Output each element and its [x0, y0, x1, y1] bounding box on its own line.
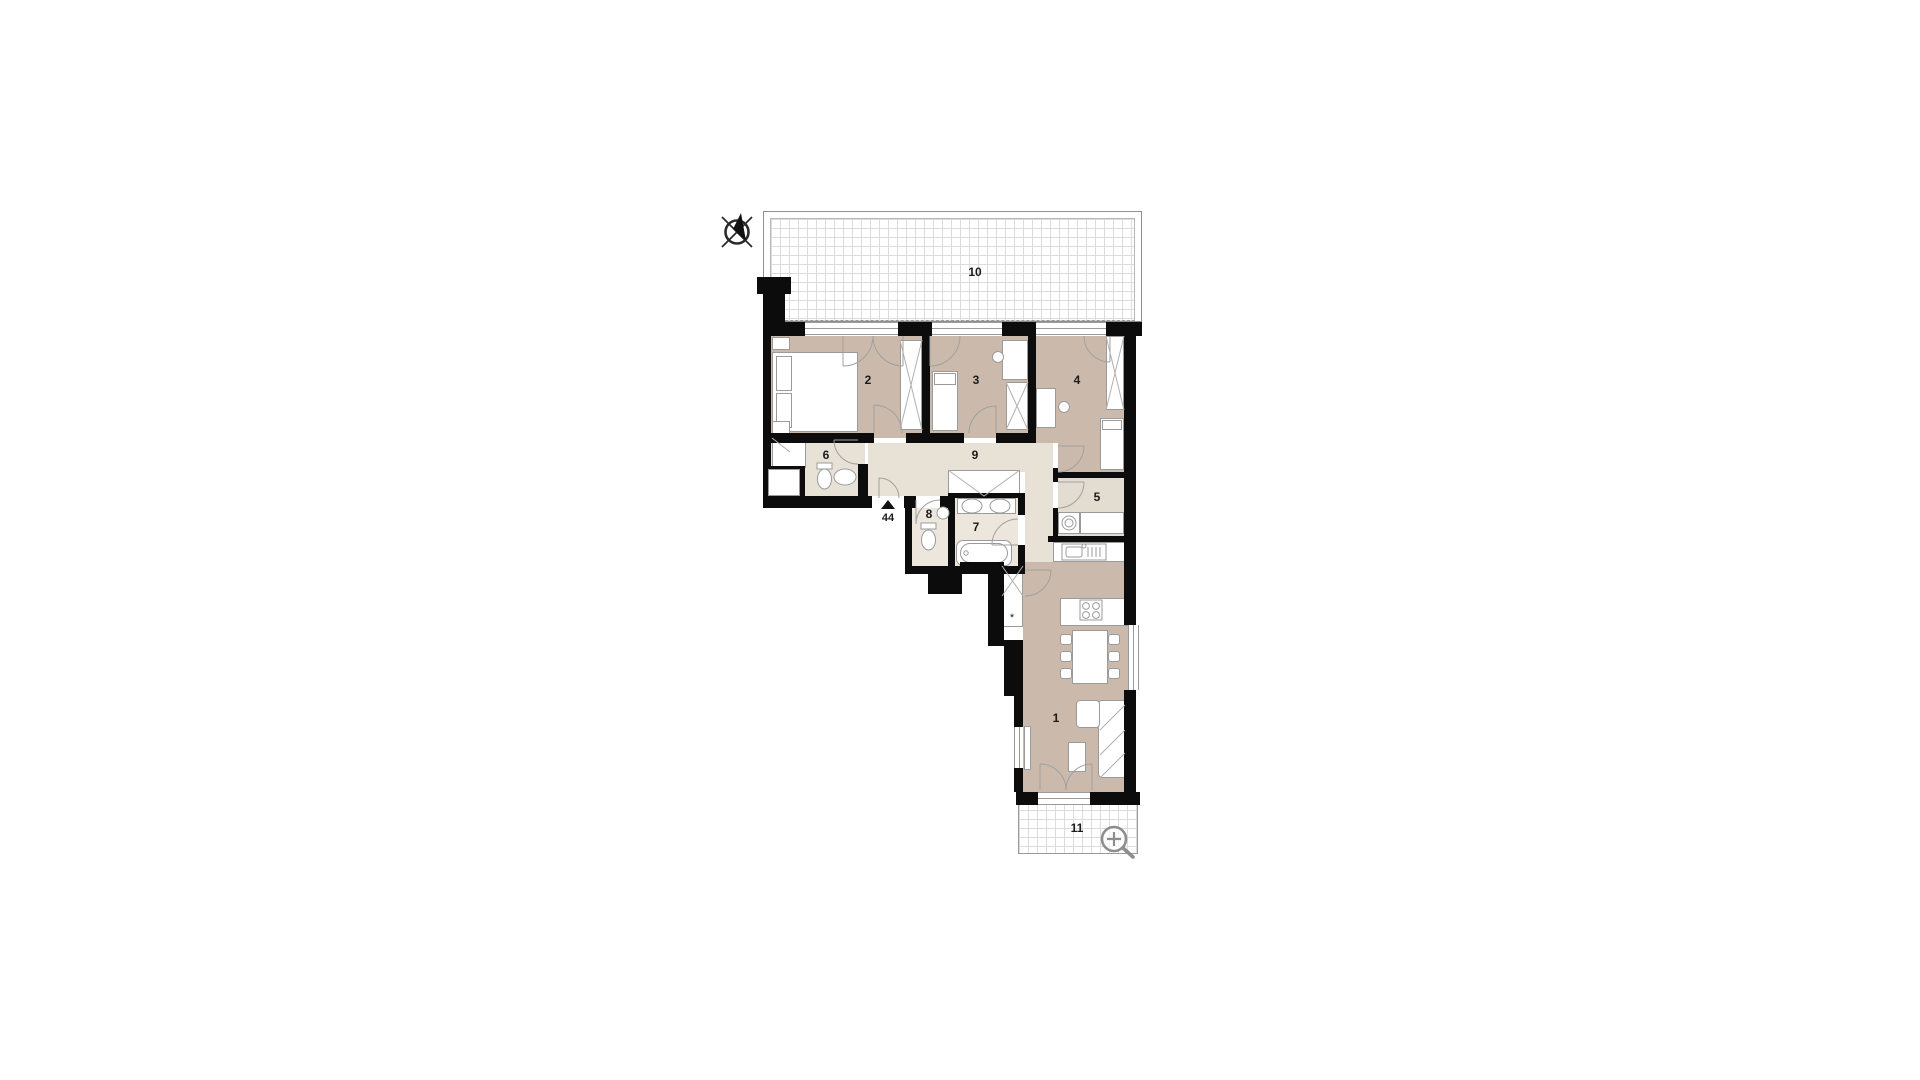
bed-pillow [1102, 420, 1122, 430]
chair [1108, 634, 1120, 645]
bed-pillow [934, 373, 956, 385]
wall-segment [1028, 322, 1036, 443]
room-label-5: 5 [1094, 490, 1101, 504]
wall-segment [996, 433, 1028, 443]
wall-segment [763, 322, 805, 336]
window [1128, 625, 1140, 690]
chair [1060, 651, 1072, 662]
wall-segment [905, 508, 912, 574]
nightstand [772, 337, 790, 350]
terrace-paving [770, 218, 1135, 321]
wall-segment [858, 464, 868, 496]
wall-segment [988, 562, 1004, 646]
sofa-chaise [1076, 700, 1100, 728]
wall-segment [1018, 498, 1025, 515]
wall-segment [928, 566, 962, 594]
chair [1060, 634, 1072, 645]
wall-segment [906, 433, 964, 443]
window [932, 322, 1002, 335]
wardrobe [1106, 336, 1124, 410]
room-label-4: 4 [1074, 373, 1081, 387]
wall-segment [922, 322, 930, 443]
balcony-door-sill [1038, 792, 1090, 805]
vanity-counter [957, 498, 1016, 514]
corridor-floor [1025, 472, 1053, 574]
wall-segment [1053, 508, 1058, 536]
wardrobe [900, 340, 922, 430]
bed-pillow [776, 356, 792, 391]
wall-segment [1124, 690, 1136, 800]
room-label-1: 1 [1053, 711, 1060, 725]
chair [1060, 668, 1072, 679]
sideboard [1024, 726, 1031, 770]
room-9-hallway-floor [868, 443, 1053, 472]
room-label-7: 7 [973, 520, 980, 534]
wall-segment [948, 493, 1025, 498]
wardrobe [1006, 382, 1028, 430]
wall-segment [1053, 472, 1136, 478]
wall-segment [1004, 640, 1023, 696]
wall-segment [763, 433, 874, 443]
room-label-6: 6 [823, 448, 830, 462]
entrance-marker-arrow [881, 500, 895, 509]
compass-icon [722, 213, 752, 247]
room-9-vestibule-floor [868, 472, 948, 496]
room-label-11: 11 [1071, 821, 1084, 835]
kitchen-island-counter [1060, 598, 1128, 626]
kitchen-counter [1053, 542, 1128, 562]
wall-segment [1090, 792, 1140, 805]
wall-segment [1048, 536, 1136, 542]
window [1014, 727, 1023, 768]
stool [1058, 401, 1070, 413]
sofa [1098, 700, 1127, 778]
floor-plan: 10 2 3 4 6 9 5 8 7 44 1 11 * [0, 0, 1920, 1080]
room-label-10: 10 [968, 265, 981, 279]
window [1036, 322, 1106, 335]
entrance-number: 44 [882, 512, 894, 524]
chair [1108, 651, 1120, 662]
stool [992, 351, 1004, 363]
dining-table [1072, 630, 1108, 684]
chair [1108, 668, 1120, 679]
wall-segment [1016, 792, 1038, 805]
room-label-9: 9 [972, 448, 979, 462]
wall-segment [948, 496, 955, 566]
bathtub-inner [960, 543, 1008, 563]
window [805, 322, 898, 335]
desk [1002, 340, 1028, 380]
terrace [763, 211, 1142, 322]
room-label-8: 8 [926, 507, 933, 521]
wall-segment [904, 496, 916, 508]
washing-machine [1058, 512, 1080, 534]
utility-counter [1080, 512, 1124, 534]
coffee-table [1068, 742, 1086, 772]
wall-segment [757, 277, 791, 294]
wall-segment [940, 496, 948, 508]
wall-segment [1053, 468, 1058, 482]
room-label-3: 3 [973, 373, 980, 387]
wall-segment [1018, 545, 1025, 568]
closet-marker: * [1010, 612, 1014, 624]
room-label-2: 2 [865, 373, 872, 387]
shaft [768, 469, 800, 496]
desk [1036, 388, 1056, 428]
